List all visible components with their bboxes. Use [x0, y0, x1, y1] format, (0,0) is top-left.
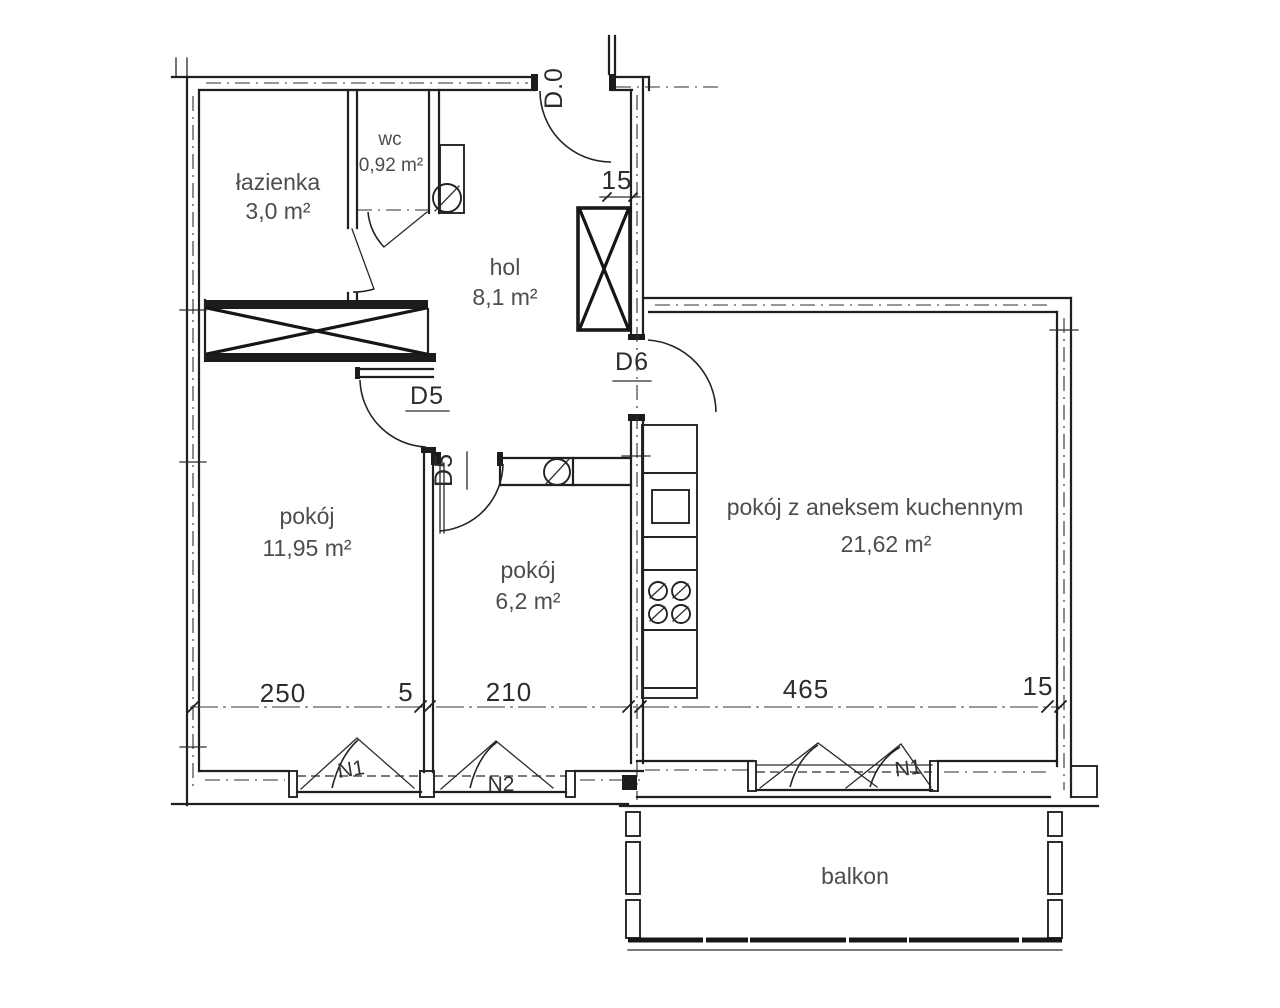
sink [652, 490, 689, 523]
dim-15-top: 15 [602, 165, 633, 195]
kitchen-counter [642, 425, 697, 698]
dim-5: 5 [398, 677, 413, 707]
room-area-pokoj-2: 6,2 m² [495, 588, 561, 614]
room-area-hol: 8,1 m² [472, 284, 538, 310]
balcony-railing-left [626, 812, 640, 938]
wardrobe-crossbox [205, 300, 436, 362]
door-label-d5-vertical: D5 [430, 453, 458, 487]
window-label-n1-left: N1 [336, 756, 366, 783]
room-area-pokoj-1: 11,95 m² [262, 535, 351, 561]
room-area-lazienka: 3,0 m² [245, 198, 311, 224]
bottom-wall [172, 761, 1057, 804]
room-label-lazienka: łazienka [236, 169, 321, 195]
dim-465: 465 [783, 674, 829, 704]
exterior-walls [172, 36, 1097, 805]
room-label-wc: wc [377, 129, 401, 150]
room-label-pokoj-1: pokój [280, 503, 335, 529]
door-label-d0: D.0 [540, 67, 568, 109]
door-label-d5-horizontal: D5 [410, 382, 444, 410]
interior-partitions [348, 90, 631, 772]
room-label-pokoj-aneks: pokój z aneksem kuchennym [727, 494, 1024, 520]
room-area-pokoj-aneks: 21,62 m² [841, 531, 932, 557]
shaft-crossbox [578, 208, 630, 330]
dimension-line: 250 5 210 465 15 [188, 671, 1066, 712]
room-label-balkon: balkon [821, 863, 889, 889]
window-label-n1-right: N1 [893, 755, 922, 781]
room-label-hol: hol [490, 254, 521, 280]
balcony-railing-right [1048, 812, 1062, 938]
window-label-n2: N2 [488, 773, 515, 796]
door-labels: D.0 D5 D5 D6 [406, 67, 651, 489]
door-label-d6: D6 [615, 348, 649, 376]
dim-250: 250 [260, 678, 306, 708]
closet-shelf [544, 459, 570, 485]
room-label-pokoj-2: pokój [501, 557, 556, 583]
wc-fixture [433, 145, 464, 213]
room-area-wc: 0,92 m² [359, 155, 423, 176]
dim-15-right: 15 [1023, 671, 1054, 701]
window-casement-symbols [301, 738, 931, 789]
floor-plan-svg: 250 5 210 465 15 15 D.0 D5 D5 D6 N1 N2 N… [0, 0, 1280, 1008]
stove-burners [649, 582, 690, 623]
dim-210: 210 [486, 677, 532, 707]
wall-thickness-dimension: 15 [600, 165, 640, 201]
floor-plan-page: 250 5 210 465 15 15 D.0 D5 D5 D6 N1 N2 N… [0, 0, 1280, 1008]
